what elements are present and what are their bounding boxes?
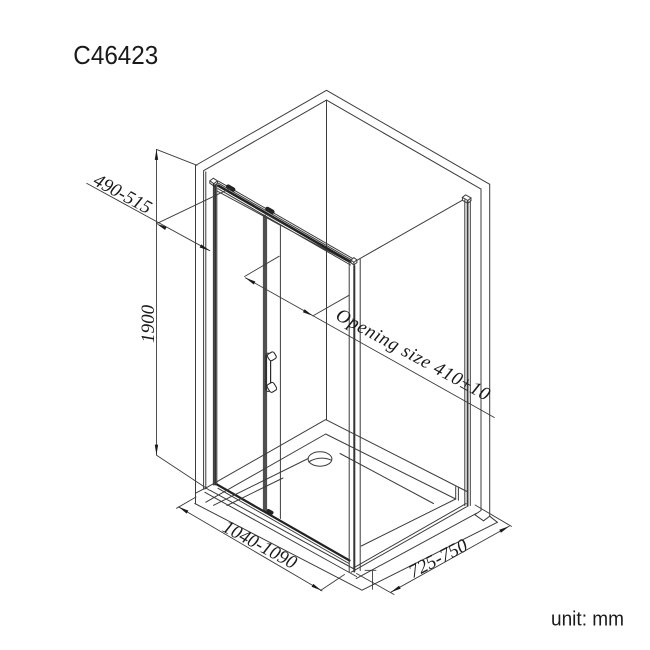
svg-text:unit: mm: unit: mm [551, 609, 624, 631]
svg-text:1900: 1900 [138, 304, 159, 343]
svg-text:C46423: C46423 [73, 40, 158, 70]
